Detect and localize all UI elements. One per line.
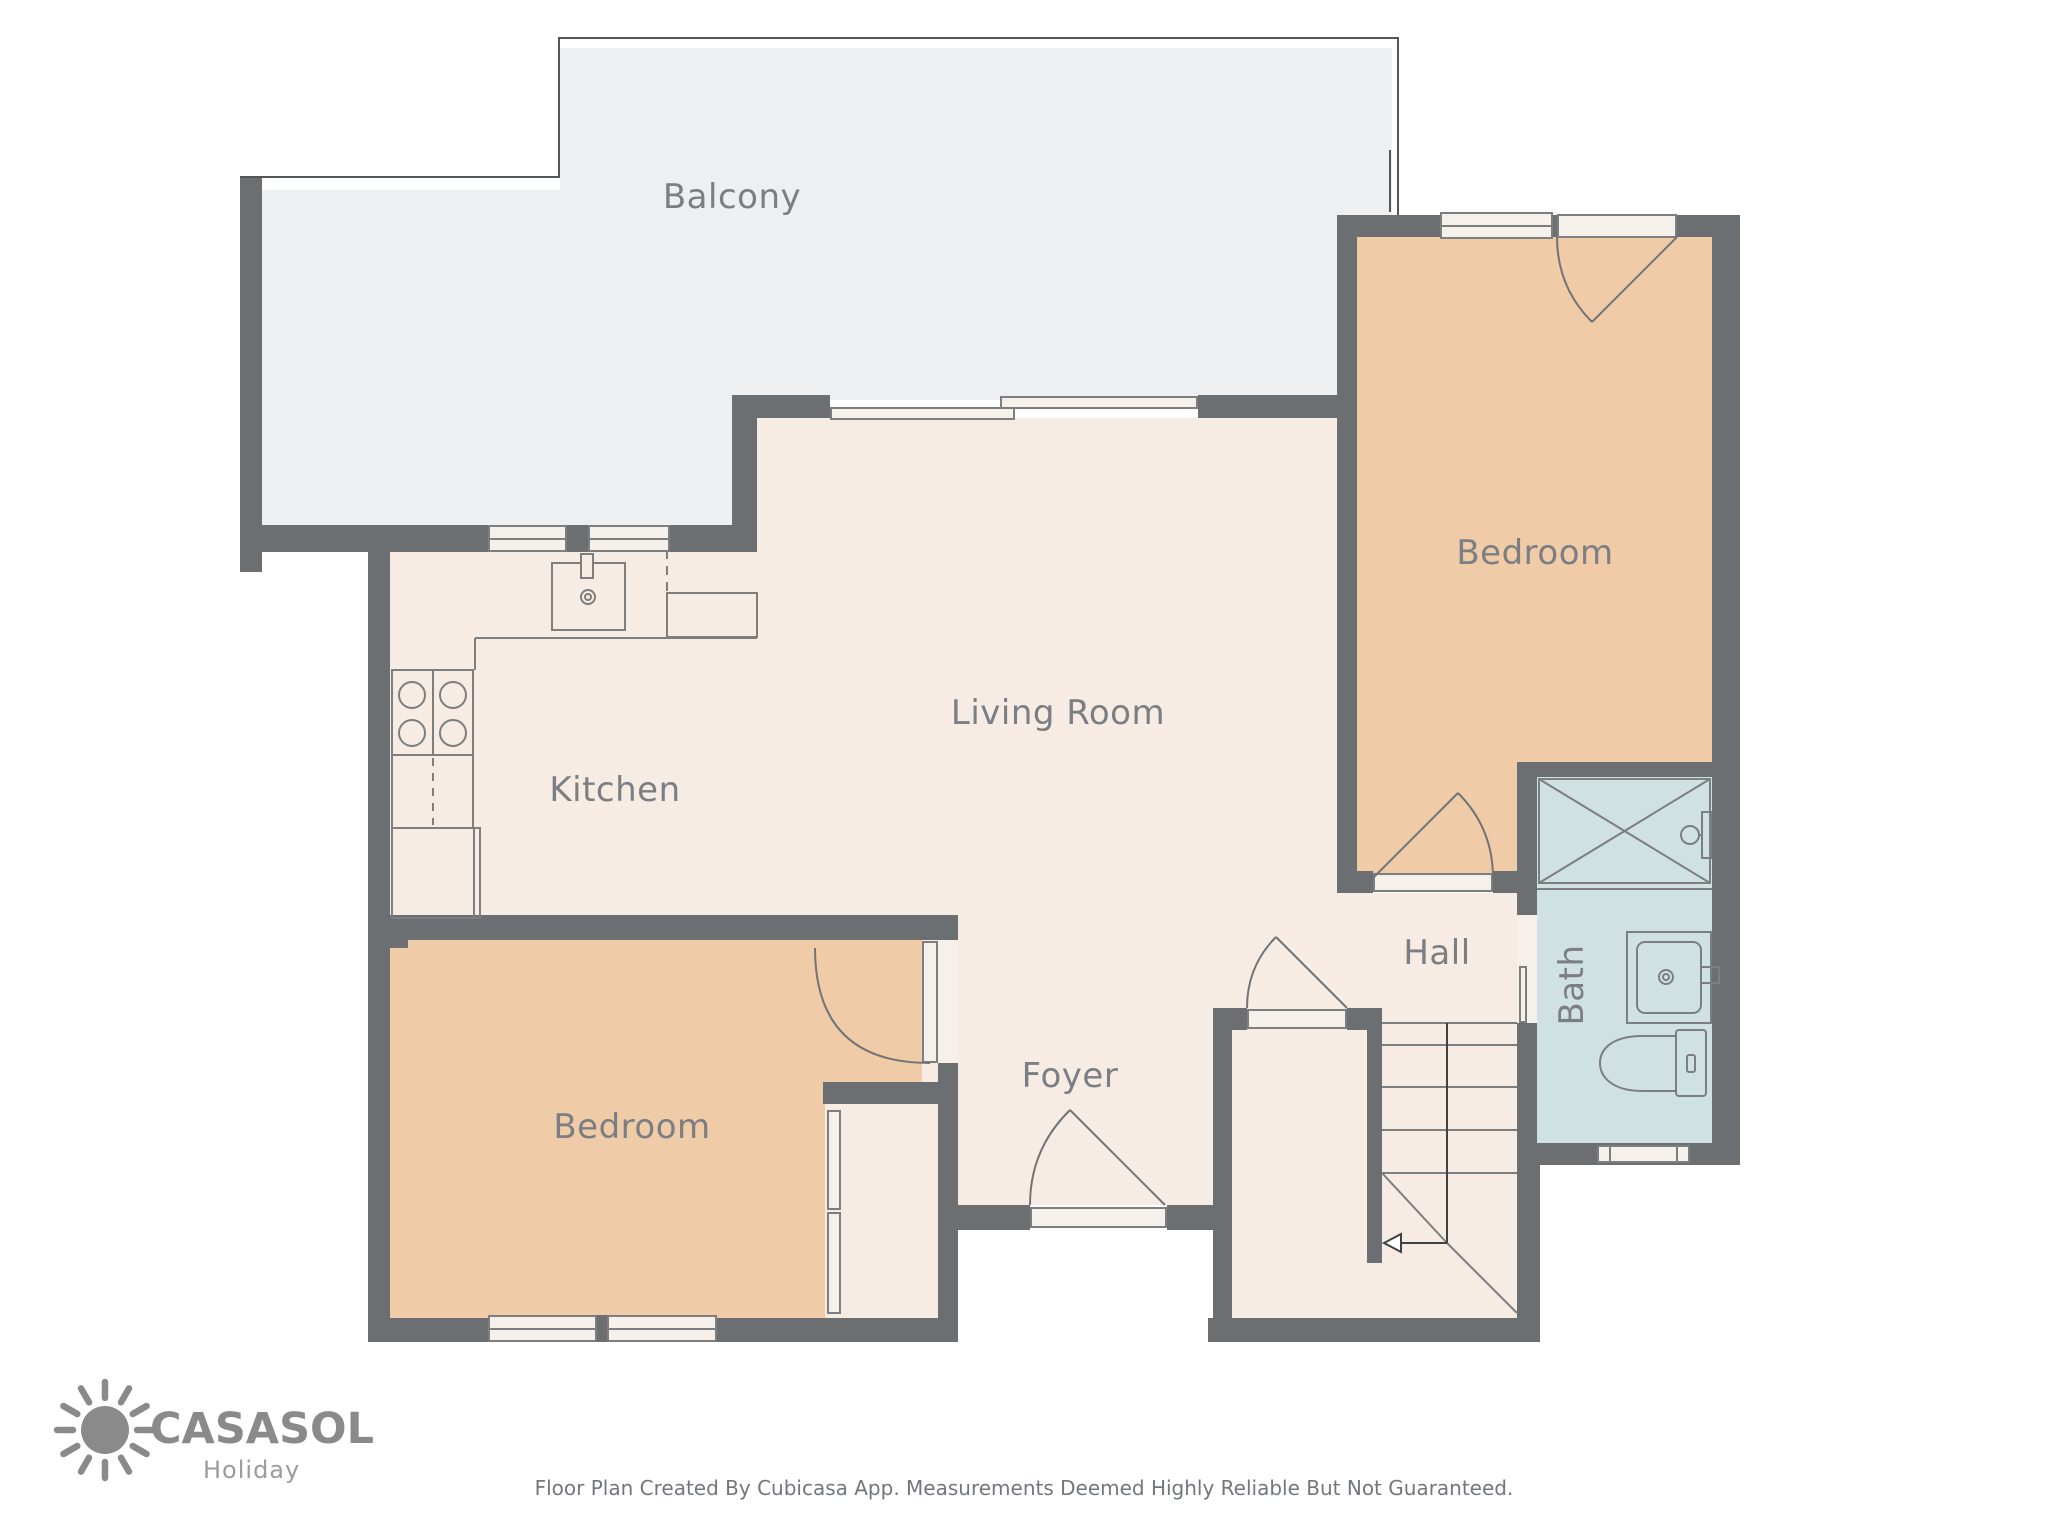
stove-icon — [392, 670, 480, 918]
room-label-living-room: Living Room — [951, 693, 1165, 733]
refrigerator-icon — [667, 550, 757, 637]
room-label-bedroom-bottom-left: Bedroom — [553, 1107, 710, 1147]
disclaimer-text: Floor Plan Created By Cubicasa App. Meas… — [0, 1476, 2048, 1500]
bath-sink-icon — [1627, 932, 1719, 1023]
room-label-kitchen: Kitchen — [549, 770, 680, 810]
room-label-hall: Hall — [1403, 933, 1470, 973]
room-label-balcony: Balcony — [663, 177, 801, 217]
room-label-bath: Bath — [1552, 944, 1592, 1025]
room-label-foyer: Foyer — [1022, 1056, 1119, 1096]
shower-fixture-icon — [1681, 812, 1711, 858]
toilet-icon — [1600, 1030, 1706, 1096]
shower-icon — [1537, 779, 1712, 889]
floor-plan: Balcony Bedroom Living Room Kitchen Bedr… — [0, 0, 2048, 1536]
kitchen-sink-icon — [552, 554, 625, 630]
stair-direction-arrow — [1384, 1023, 1447, 1252]
sun-logo-icon — [57, 1382, 153, 1478]
door-arc — [815, 237, 1677, 1205]
stairs — [1382, 1023, 1517, 1313]
room-label-bedroom-top-right: Bedroom — [1456, 533, 1613, 573]
logo-text: CASASOL — [150, 1404, 374, 1454]
